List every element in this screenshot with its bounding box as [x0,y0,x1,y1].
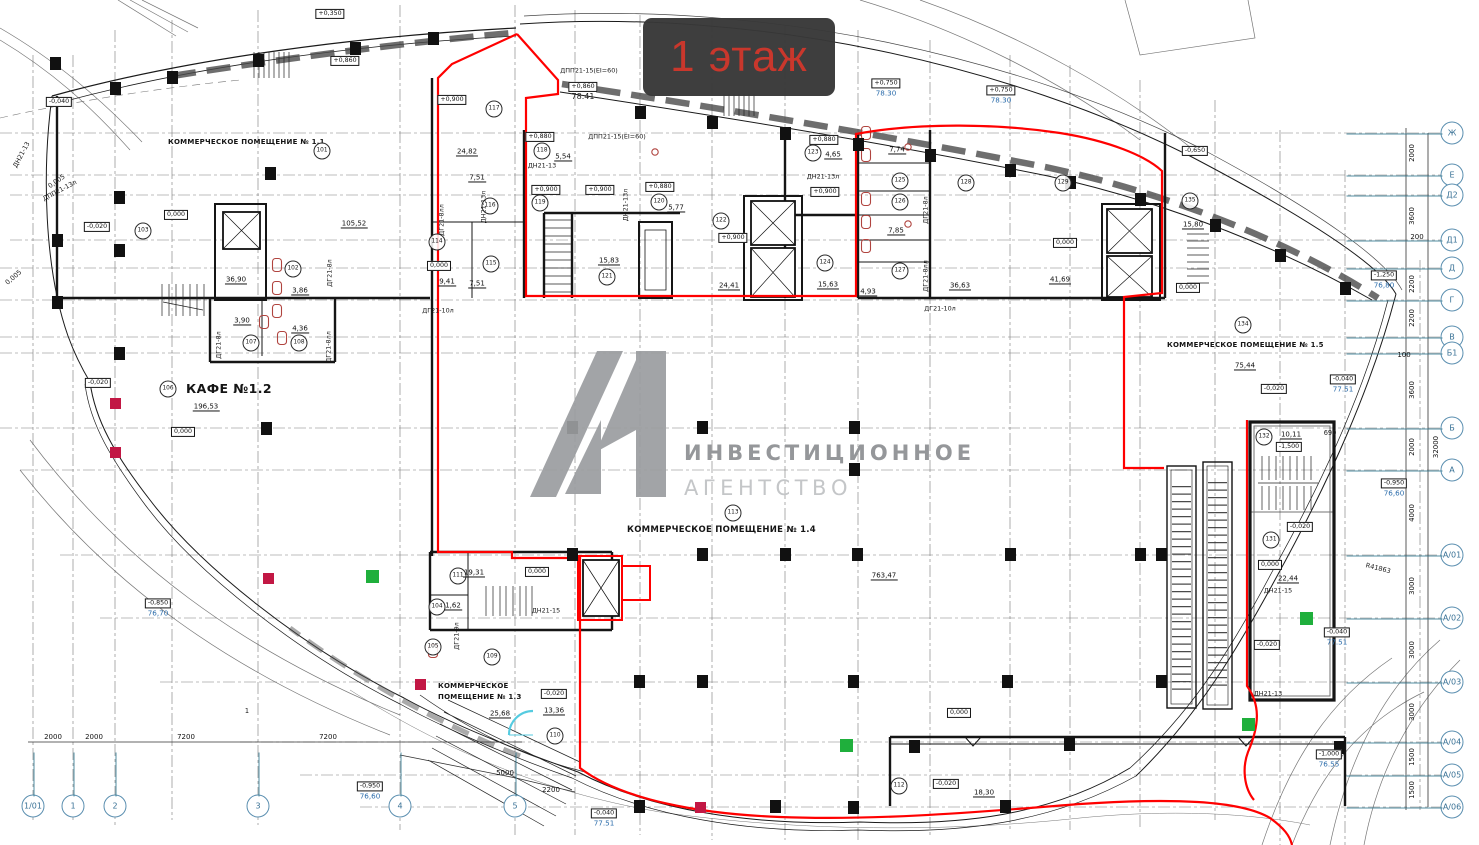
watermark-logo [530,351,666,497]
watermark-line2: АГЕНТСТВО [684,476,852,500]
stairs [162,52,1318,826]
floorplan-drawing [0,0,1479,845]
floor-title-badge: 1 этаж [643,18,835,96]
site-lines [0,0,1460,845]
floorplan-sheet: КОММЕРЧЕСКОЕ ПОМЕЩЕНИЕ № 1.1КАФЕ №1.2КОМ… [0,0,1479,845]
door-swing-cyan [509,711,533,735]
floor-title-text: 1 этаж [670,32,808,82]
watermark-line1: ИНВЕСТИЦИОННОЕ [684,441,975,465]
escalators [1167,462,1232,709]
grid-lines [0,5,1441,845]
columns [50,32,1351,814]
facade-curves [46,13,1402,830]
